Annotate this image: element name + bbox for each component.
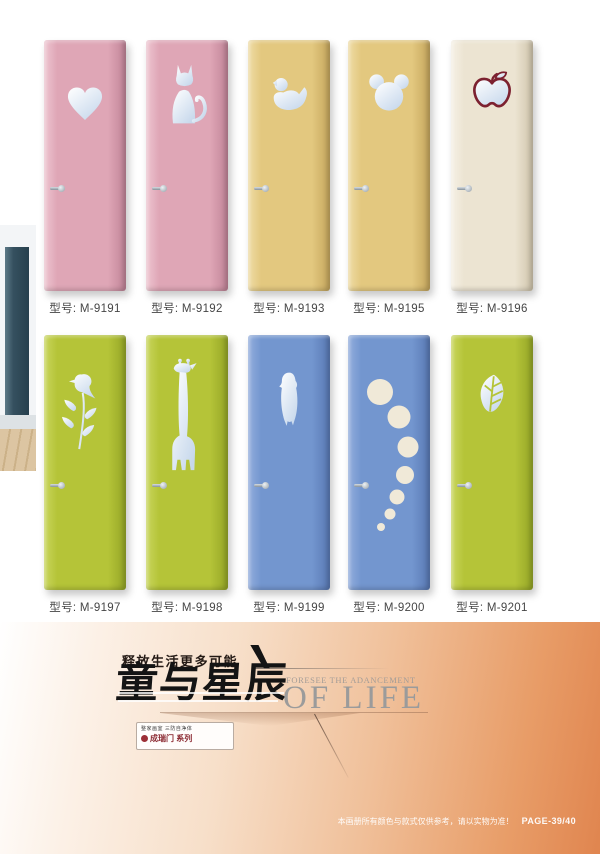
door-giraffe [146,335,228,590]
page-number: PAGE-39/40 [522,816,576,826]
cat-icon [166,60,209,127]
leaf-icon [474,373,510,413]
door-unit-leaf: 型号: M-9201 [451,335,533,590]
apple-icon [470,70,514,114]
brand-logo-box: 整家画室 三防自净体 成瑞门 系列 [136,722,234,750]
door-apple [451,40,533,291]
door-cat [146,40,228,291]
bubbles-icon [348,335,430,590]
door-unit-bird: 型号: M-9197 [44,335,126,590]
title-strike-line [118,700,278,702]
penguin-icon [277,371,301,429]
door-unit-giraffe: 型号: M-9198 [146,335,228,590]
door-bubbles [348,335,430,590]
giraffe-icon [165,358,209,476]
door-unit-bubbles: 型号: M-9200 [348,335,430,590]
door-heart [44,40,126,291]
door-leaf [451,335,533,590]
door-handle [457,484,470,487]
brand-logo-dot-icon [141,735,148,742]
door-handle [254,484,267,487]
door-duck [248,40,330,291]
room-photo-fragment [0,225,36,471]
door-penguin [248,335,330,590]
photo-wood-floor [0,429,36,471]
door-handle [50,484,63,487]
door-handle [457,187,470,190]
door-handle [354,187,367,190]
duck-icon [269,75,308,117]
disclaimer-line: 本画册所有颜色与款式仅供参考，请以实物为准！ PAGE-39/40 [338,816,576,827]
model-label: 型号: M-9201 [417,599,567,615]
photo-baseboard [0,415,36,429]
brand-logo-series-label: 成瑞门 系列 [150,733,192,744]
door-unit-duck: 型号: M-9193 [248,40,330,291]
title-strike-line [118,692,284,694]
brand-logo-tagline: 整家画室 三防自净体 [141,725,229,732]
bird-on-flower-icon [62,371,108,451]
mickey-icon [366,73,412,112]
door-unit-heart: 型号: M-9191 [44,40,126,291]
door-unit-mickey: 型号: M-9195 [348,40,430,291]
brand-logo-series: 成瑞门 系列 [141,733,229,744]
door-bird [44,335,126,590]
door-mickey [348,40,430,291]
photo-door-slab [5,247,29,419]
door-handle [254,187,267,190]
door-handle [152,187,165,190]
door-handle [354,484,367,487]
door-handle [152,484,165,487]
door-unit-cat: 型号: M-9192 [146,40,228,291]
fold-edge-line [160,712,428,713]
heart-icon [64,85,107,123]
door-unit-apple: 型号: M-9196 [451,40,533,291]
door-unit-penguin: 型号: M-9199 [248,335,330,590]
door-handle [50,187,63,190]
catalog-page: 型号: M-9191型号: M-9192型号: M-9193型号: M-9195… [0,0,600,854]
disclaimer-text: 本画册所有颜色与款式仅供参考，请以实物为准！ [338,816,514,827]
model-label: 型号: M-9196 [417,300,567,316]
